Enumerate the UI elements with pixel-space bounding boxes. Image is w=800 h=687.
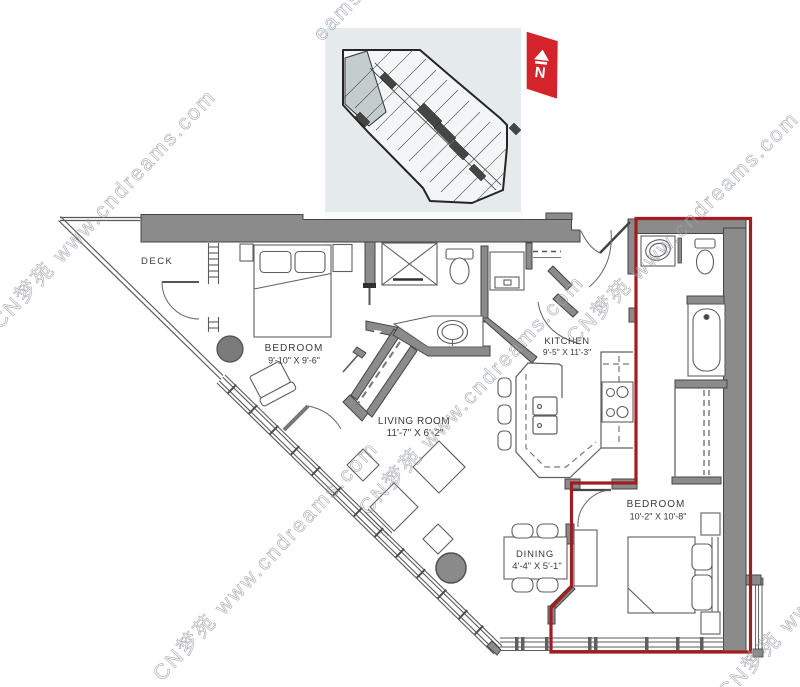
svg-text:DECK: DECK (141, 256, 173, 267)
svg-text:10'-2" X 10'-8": 10'-2" X 10'-8" (630, 512, 687, 522)
svg-text:BEDROOM: BEDROOM (627, 499, 686, 510)
svg-text:4'-4" X 5'-1": 4'-4" X 5'-1" (512, 561, 561, 572)
svg-text:N: N (534, 64, 547, 82)
svg-text:DINING: DINING (516, 549, 554, 560)
svg-text:9'-5" X 11'-3": 9'-5" X 11'-3" (543, 347, 591, 357)
svg-text:BEDROOM: BEDROOM (265, 343, 324, 354)
svg-text:9'-10" X 9'-6": 9'-10" X 9'-6" (268, 356, 320, 366)
